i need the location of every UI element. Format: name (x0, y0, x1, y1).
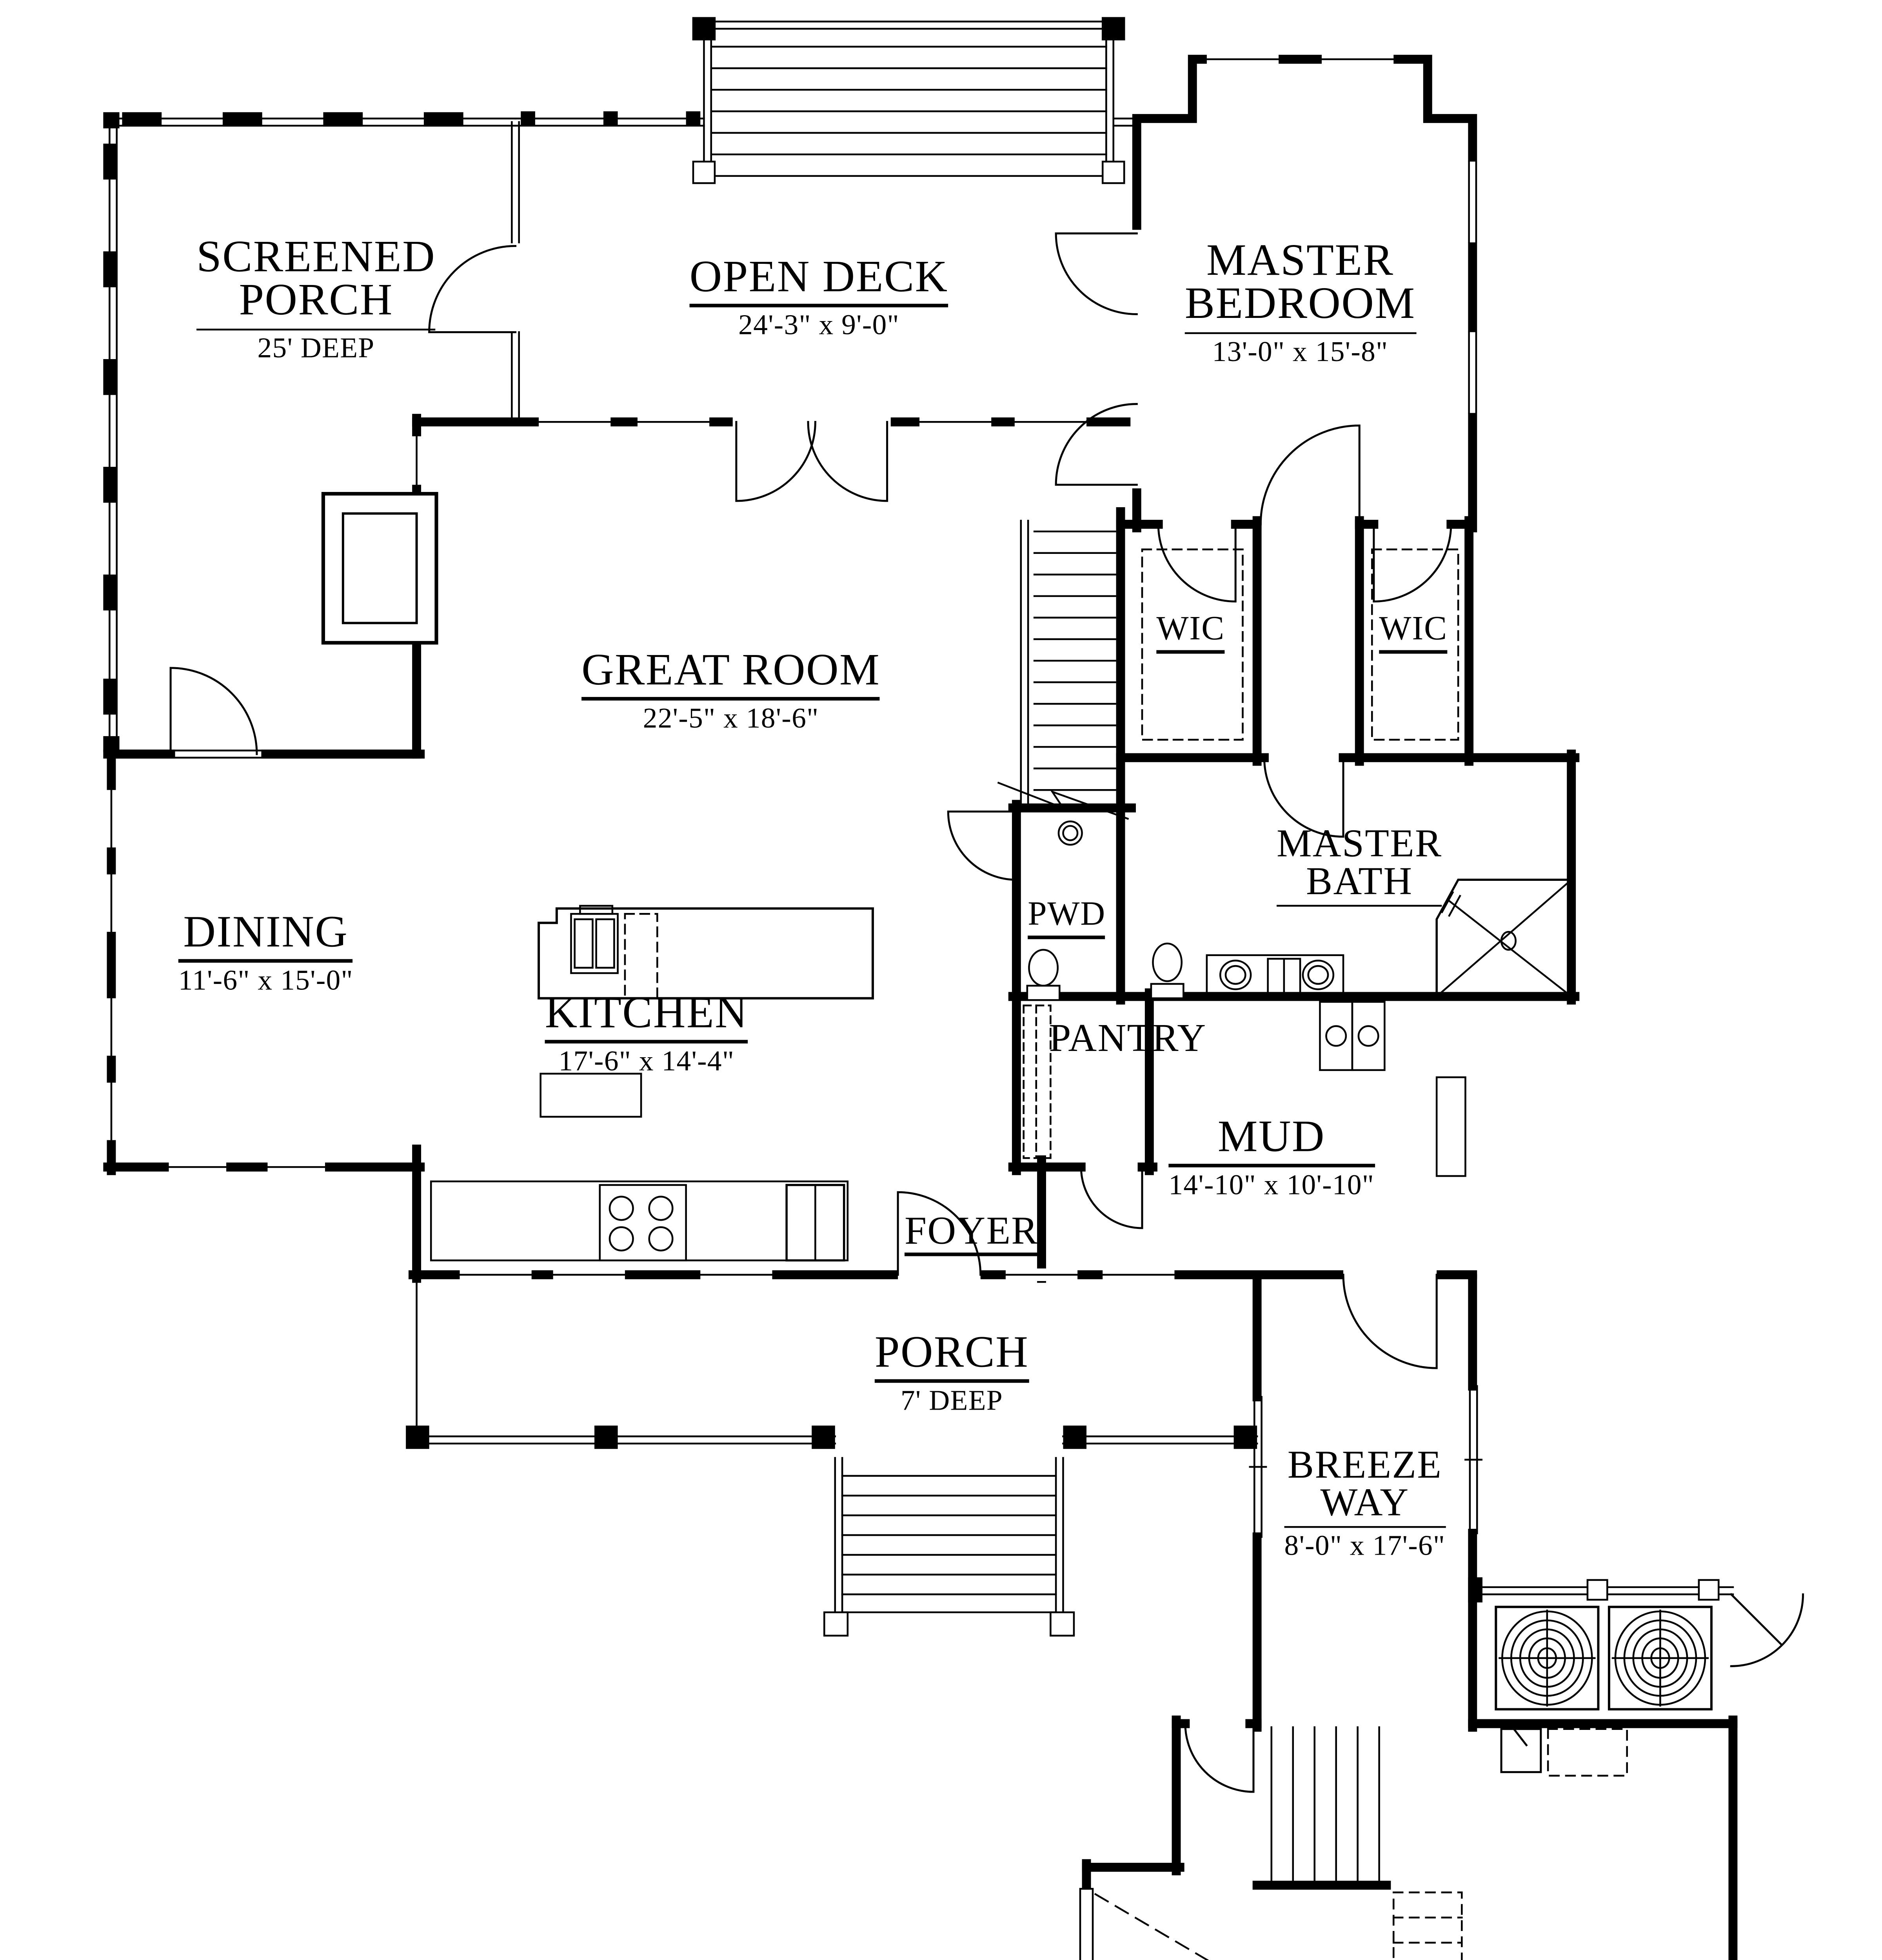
room-dims: 17'-6" x 14'-4" (558, 1046, 734, 1078)
room-label-master-bath: MASTER BATH (1277, 824, 1442, 907)
label-underline (1028, 936, 1106, 939)
label-underline (1185, 331, 1416, 334)
room-name: WAY (1320, 1484, 1409, 1522)
room-name: GREAT ROOM (581, 650, 880, 694)
room-label-screened-porch: SCREENED PORCH 25' DEEP (196, 237, 436, 366)
garage-door-panels (1080, 1889, 1177, 1960)
label-underline (1379, 651, 1448, 653)
room-label-master-bedroom: MASTER BEDROOM 13'-0" x 15'-8" (1185, 241, 1416, 370)
room-label-wic-right: WIC (1379, 614, 1448, 653)
kitchen-fixtures (431, 906, 873, 1261)
room-name: FOYER (905, 1211, 1039, 1250)
label-underline (196, 328, 436, 330)
garage-walls (1083, 1720, 1737, 1960)
porch-stairs (824, 1458, 1074, 1635)
room-name: MUD (1218, 1117, 1325, 1161)
room-label-kitchen: KITCHEN 17'-6" x 14'-4" (545, 993, 748, 1079)
label-underline (1277, 904, 1442, 907)
room-name: SCREENED (196, 237, 436, 281)
pantry-shelves (1024, 1005, 1051, 1158)
deck-stairs (693, 18, 1124, 183)
label-underline (1168, 1164, 1374, 1167)
room-name: OPEN DECK (690, 257, 948, 301)
screened-porch-walls (103, 112, 515, 758)
room-dims: 24'-3" x 9'-0" (738, 310, 899, 343)
fireplace (323, 494, 436, 643)
label-underline (545, 1040, 748, 1043)
room-label-wic-left: WIC (1156, 614, 1225, 653)
room-dims: 25' DEEP (258, 334, 375, 366)
room-label-pantry: PANTRY (1049, 1019, 1206, 1057)
room-dims: 7' DEEP (901, 1386, 1003, 1418)
label-underline (690, 304, 948, 307)
room-name: DINING (183, 913, 348, 956)
room-name: BATH (1306, 862, 1413, 901)
room-label-breezeway: BREEZE WAY 8'-0" x 17'-6" (1284, 1445, 1446, 1564)
garage-utility (1501, 1729, 1627, 1776)
garage-dashed-tracks (1095, 1894, 1365, 1960)
room-name: BREEZE (1288, 1445, 1442, 1484)
label-underline (875, 1380, 1029, 1382)
garage-stairs (1272, 1727, 1462, 1960)
label-underline (1284, 1525, 1446, 1528)
room-name: PORCH (239, 281, 393, 324)
room-label-foyer: FOYER (905, 1211, 1039, 1256)
room-name: MASTER (1277, 824, 1442, 862)
room-label-great-room: GREAT ROOM 22'-5" x 18'-6" (581, 650, 880, 736)
room-dims: 8'-0" x 17'-6" (1284, 1532, 1446, 1564)
room-label-dining: DINING 11'-6" x 15'-0" (178, 913, 353, 998)
room-name: BEDROOM (1185, 284, 1416, 328)
hvac-pad (1469, 1578, 1733, 1709)
floor-plan-page: SCREENED PORCH 25' DEEP OPEN DECK 24'-3"… (0, 0, 1882, 1960)
room-label-open-deck: OPEN DECK 24'-3" x 9'-0" (690, 257, 948, 343)
room-label-mud: MUD 14'-10" x 10'-10" (1168, 1117, 1374, 1203)
room-name: PORCH (875, 1332, 1029, 1376)
room-dims: 14'-10" x 10'-10" (1168, 1170, 1374, 1202)
room-name: KITCHEN (545, 993, 748, 1037)
label-underline (178, 960, 353, 962)
room-name: WIC (1379, 614, 1448, 647)
label-underline (905, 1253, 1039, 1256)
room-label-pwd: PWD (1028, 900, 1106, 939)
label-underline (1156, 651, 1225, 653)
room-label-porch: PORCH 7' DEEP (875, 1332, 1029, 1418)
room-name: PANTRY (1049, 1019, 1206, 1057)
room-dims: 11'-6" x 15'-0" (178, 965, 353, 998)
front-porch (406, 1278, 1257, 1449)
main-stairs (999, 521, 1128, 818)
label-underline (581, 697, 880, 700)
room-name: MASTER (1206, 241, 1394, 284)
room-name: WIC (1156, 614, 1225, 647)
room-name: PWD (1028, 900, 1106, 933)
room-dims: 22'-5" x 18'-6" (643, 704, 819, 736)
room-dims: 13'-0" x 15'-8" (1212, 338, 1388, 370)
